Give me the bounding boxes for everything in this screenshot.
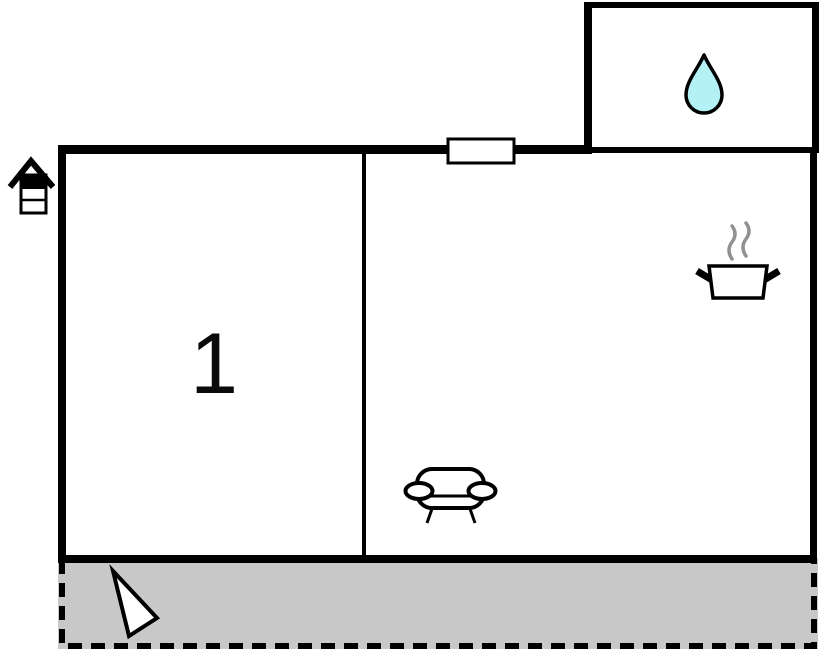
main-bottom-wall: [58, 555, 817, 563]
main-left-wall: [58, 145, 66, 562]
water-drop-icon: [686, 55, 722, 113]
interior-divider-wall: [362, 154, 366, 555]
terrace-area: [58, 558, 818, 649]
bathroom-top-wall: [584, 2, 819, 8]
house-marker-icon: [10, 161, 53, 213]
bathroom-left-wall: [584, 2, 592, 153]
pot-body: [709, 266, 767, 298]
bathroom-right-wall: [812, 2, 819, 153]
house-marker-band: [21, 175, 46, 189]
bathroom-bottom-wall: [592, 147, 819, 153]
room-1-label: 1: [190, 316, 238, 412]
sofa-icon: [406, 469, 496, 523]
sofa-armrest-right: [469, 483, 496, 499]
terrace-fill: [58, 558, 818, 649]
floor-plan-drawing: 1: [0, 0, 819, 652]
cooking-pot-icon: [697, 223, 779, 298]
steam-line-right: [743, 223, 749, 256]
main-right-wall: [810, 147, 817, 562]
floor-plan: 1: [0, 0, 819, 652]
steam-line-left: [729, 226, 735, 259]
sofa-armrest-left: [406, 483, 433, 499]
window-symbol: [448, 139, 514, 163]
